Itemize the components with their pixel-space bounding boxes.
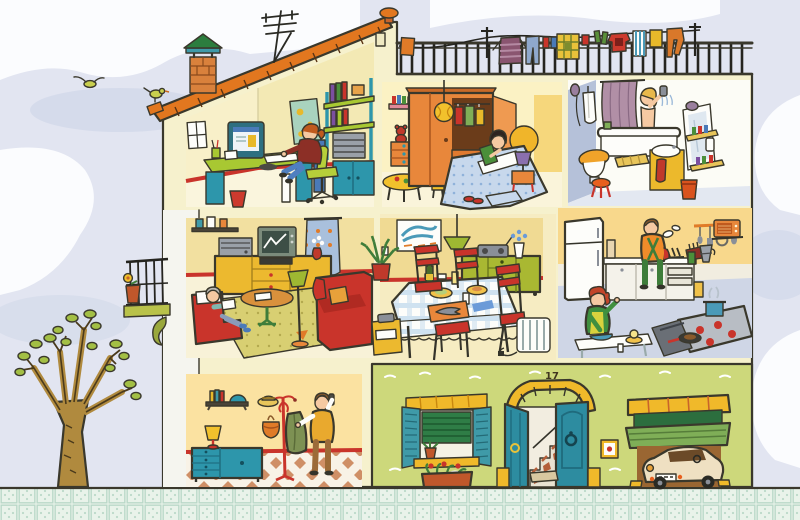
house-cutaway-illustration: 17: [0, 0, 800, 520]
room-living: [186, 217, 374, 358]
sofa: [313, 272, 372, 350]
room-kitchen: [558, 208, 752, 358]
door-closed-leaf: [556, 402, 588, 487]
drawer: [668, 268, 692, 275]
window-sill: [414, 457, 479, 468]
bottle: [607, 240, 615, 258]
lotion-bottle: [706, 138, 714, 151]
house-number: 17: [545, 371, 559, 382]
washbasin-cabinet: [650, 145, 684, 190]
juice-glass: [694, 282, 703, 297]
teddy-bear: [395, 125, 407, 143]
room-bathroom: [568, 80, 750, 206]
note: [225, 150, 238, 159]
box: [352, 85, 364, 95]
illustration-stage: 17: [0, 0, 800, 520]
bag-on-mirror: [686, 102, 698, 111]
washbasin: [652, 145, 680, 157]
mouse-pad: [259, 164, 277, 171]
hall-sideboard: [192, 448, 262, 482]
television: [258, 227, 296, 257]
cabinet: [333, 161, 374, 195]
striped-towel: [633, 31, 646, 56]
telephone: [378, 313, 395, 322]
bottle-on-tub: [604, 122, 611, 129]
green-bottle: [688, 252, 695, 264]
room-hallway: [186, 374, 362, 487]
socket: [438, 274, 446, 279]
counter: [604, 258, 696, 300]
vcr: [260, 258, 292, 264]
checked-blanket: [557, 34, 579, 59]
stereo: [219, 238, 252, 256]
roller-blind: [422, 412, 471, 443]
microwave: [712, 220, 743, 239]
door-jamb-post: [497, 468, 509, 487]
room-dining: [361, 214, 556, 360]
towel: [656, 159, 666, 182]
door-jamb-post: [588, 468, 600, 487]
green-sock: [601, 32, 608, 45]
slipper: [473, 198, 483, 203]
wall-light: [571, 84, 580, 96]
curb-stop: [718, 480, 730, 486]
salt-shaker: [618, 344, 623, 352]
ceramic-plaque: [601, 440, 618, 458]
red-tshirt: [608, 33, 630, 52]
green-coat: [286, 412, 306, 453]
curb-stop: [630, 481, 642, 487]
red-sock: [543, 37, 549, 48]
plug: [498, 351, 504, 356]
phone-book: [376, 329, 397, 339]
blue-sock: [551, 37, 557, 48]
book: [222, 299, 236, 310]
doormat: [530, 471, 558, 482]
orange-towel: [400, 38, 414, 56]
headlight: [647, 465, 654, 472]
gable-vent: [376, 33, 385, 46]
yellow-shirt: [650, 30, 662, 47]
pavement: [0, 488, 800, 520]
stereo-drawers: [333, 133, 365, 158]
garage-roller-door: [626, 423, 730, 448]
room-bedroom: [382, 80, 562, 209]
cushion: [329, 287, 348, 305]
study-window: [187, 121, 207, 149]
waste-bin: [230, 191, 246, 207]
pedal-bin: [681, 180, 697, 199]
drawer: [668, 278, 692, 285]
garage: [626, 395, 730, 490]
red-cloth: [582, 35, 589, 45]
balcony-slab: [124, 304, 170, 317]
green-sock: [594, 31, 601, 44]
shower-head: [660, 86, 667, 96]
